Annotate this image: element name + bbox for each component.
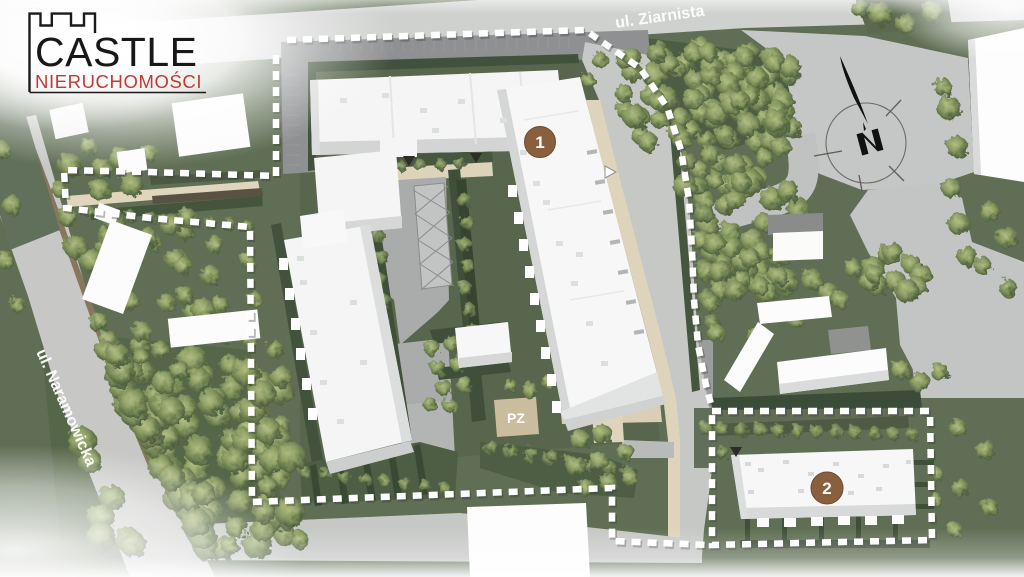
svg-text:1: 1 — [535, 133, 544, 152]
svg-text:PZ: PZ — [507, 410, 525, 426]
svg-text:CASTLE: CASTLE — [35, 29, 198, 75]
svg-text:2: 2 — [822, 479, 831, 498]
svg-text:NIERUCHOMOŚCI: NIERUCHOMOŚCI — [35, 71, 202, 92]
